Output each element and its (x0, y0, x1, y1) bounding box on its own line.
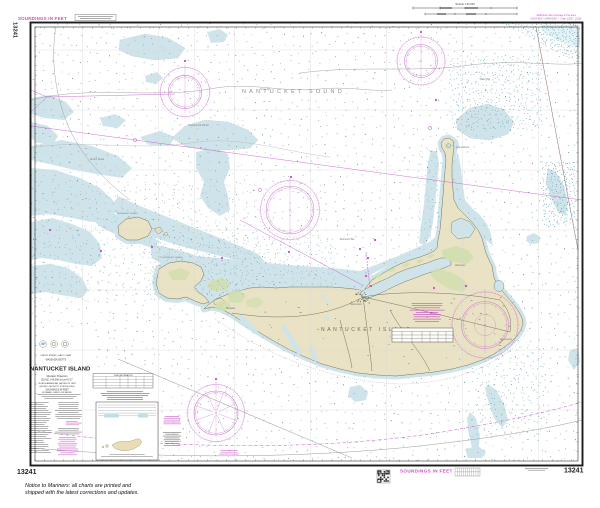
svg-text:TIDAL INFORMATION: TIDAL INFORMATION (114, 374, 134, 377)
svg-text:13241: 13241 (12, 22, 18, 39)
svg-text:AT MEAN LOWER LOW WATER: AT MEAN LOWER LOW WATER (42, 391, 72, 394)
svg-text:Tuckernuck Shoal: Tuckernuck Shoal (188, 123, 209, 127)
svg-text:13241: 13241 (17, 469, 37, 476)
svg-text:MASSACHUSETTS: MASSACHUSETTS (46, 359, 67, 362)
svg-text:(WORLD GEODETIC SYSTEM 1984): (WORLD GEODETIC SYSTEM 1984) (40, 386, 75, 388)
svg-text:Nantucket: Nantucket (350, 302, 362, 306)
svg-text:shipped with the latest correc: shipped with the latest corrections and … (25, 490, 139, 496)
svg-text:Madaket: Madaket (226, 307, 236, 310)
svg-text:SOUNDINGS IN FEET: SOUNDINGS IN FEET (400, 469, 453, 474)
svg-text:SCALE 1:40,000 at Lat 41°17': SCALE 1:40,000 at Lat 41°17' (41, 379, 73, 382)
svg-text:NANTUCKET ISLAND: NANTUCKET ISLAND (30, 367, 90, 373)
svg-text:Point Rip: Point Rip (480, 78, 490, 81)
svg-text:Wauwinet: Wauwinet (455, 264, 466, 267)
svg-text:Siasconset: Siasconset (500, 338, 513, 341)
svg-text:NOAA ENC US4MA23M — Chart 1323: NOAA ENC US4MA23M — Chart 13237, 13238 (531, 17, 582, 20)
svg-text:Nantucket Bar: Nantucket Bar (340, 238, 355, 241)
svg-text:NANTUCKET SOUND: NANTUCKET SOUND (242, 89, 345, 95)
svg-text:NORTH AMERICAN DATUM OF 1983: NORTH AMERICAN DATUM OF 1983 (38, 382, 76, 385)
svg-text:UNITED STATES - EAST COAST: UNITED STATES - EAST COAST (40, 354, 72, 357)
svg-text:Great Point: Great Point (456, 145, 469, 149)
svg-text:Norton Shoal: Norton Shoal (90, 158, 104, 161)
svg-text:13241: 13241 (564, 468, 584, 475)
svg-text:SCALE 1:40,000: SCALE 1:40,000 (455, 2, 475, 6)
svg-text:SOUNDINGS IN FEET: SOUNDINGS IN FEET (18, 16, 67, 21)
svg-text:Notice to Mariners: all charts: Notice to Mariners: all charts are print… (25, 483, 132, 489)
svg-text:TUCKERNUCK ISLAND: TUCKERNUCK ISLAND (160, 256, 183, 259)
svg-text:MUSKEGET ISLAND: MUSKEGET ISLAND (117, 212, 138, 215)
